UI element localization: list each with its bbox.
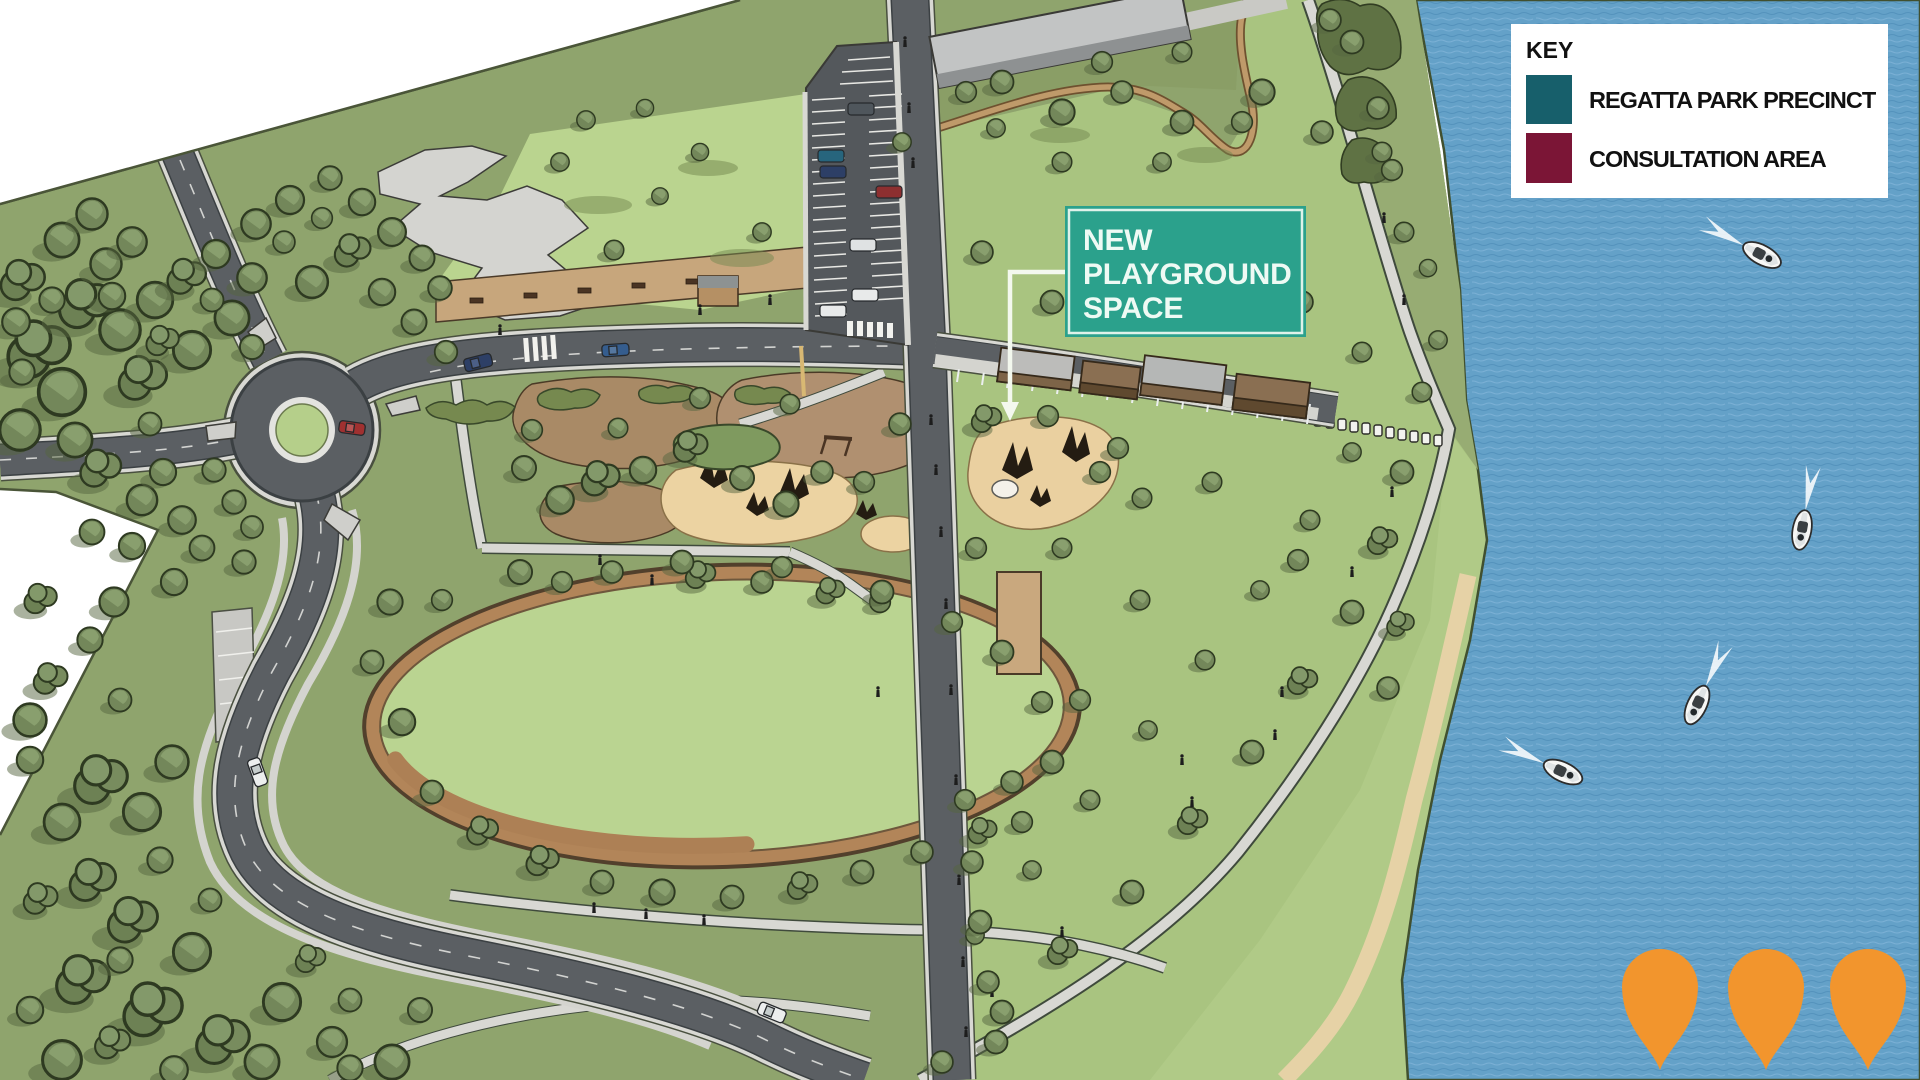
svg-text:REGATTA PARK PRECINCT: REGATTA PARK PRECINCT bbox=[1589, 87, 1877, 113]
svg-text:KEY: KEY bbox=[1526, 37, 1573, 63]
svg-text:PLAYGROUND: PLAYGROUND bbox=[1083, 258, 1292, 291]
svg-text:CONSULTATION AREA: CONSULTATION AREA bbox=[1589, 146, 1827, 172]
svg-text:SPACE: SPACE bbox=[1083, 292, 1183, 325]
svg-text:NEW: NEW bbox=[1083, 224, 1153, 257]
